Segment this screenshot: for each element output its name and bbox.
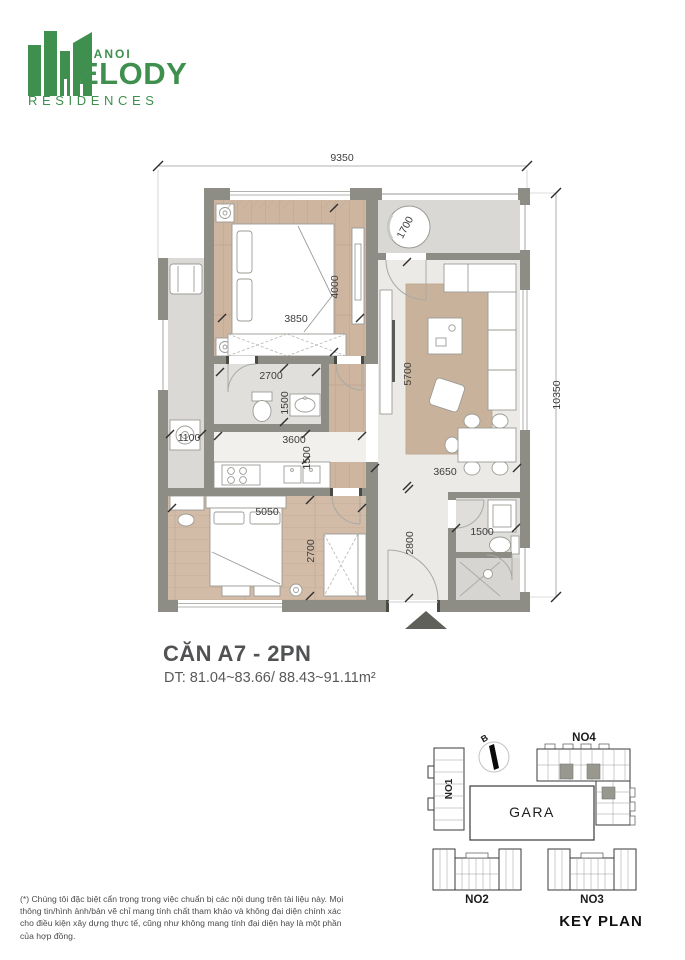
unit-title: CĂN A7 - 2PN xyxy=(163,641,311,667)
dim-kitchen-height: 1500 xyxy=(301,446,313,470)
keyplan-label-no1: NO1 xyxy=(444,778,455,799)
dim-bath2-width: 1500 xyxy=(470,526,494,538)
key-plan: NO1 B GARA xyxy=(428,732,643,930)
north-compass-icon xyxy=(479,742,509,772)
keyplan-building-no3 xyxy=(548,849,636,890)
dim-kitchen-width: 3600 xyxy=(282,434,306,446)
dim-overall-width: 9350 xyxy=(330,152,354,164)
dim-overall-height: 10350 xyxy=(551,380,563,409)
dim-utility-width: 1100 xyxy=(178,432,201,444)
floor-plan-drawing: 9350 10350 1700 3850 4000 2700 1500 5700… xyxy=(0,0,685,960)
keyplan-label-no2: NO2 xyxy=(465,894,489,906)
dim-dining-width: 3650 xyxy=(433,466,457,478)
keyplan-building-no2 xyxy=(433,849,521,890)
dim-hall-height: 2800 xyxy=(404,531,416,555)
keyplan-gara-label: GARA xyxy=(509,804,555,820)
disclaimer-footnote: (*) Chúng tôi đặc biệt cẩn trọng trong v… xyxy=(20,893,356,942)
page: HANOI ELODY RESIDENCES xyxy=(0,0,685,960)
keyplan-label-no4: NO4 xyxy=(572,732,596,744)
dim-bed2-width: 5050 xyxy=(255,506,279,518)
unit-area: DT: 81.04~83.66/ 88.43~91.11m² xyxy=(164,670,376,686)
dim-bath1-height: 1500 xyxy=(279,391,291,415)
entrance-arrow xyxy=(405,611,447,629)
dim-living-height: 5700 xyxy=(402,362,414,386)
dim-bed1-width: 3850 xyxy=(284,313,308,325)
keyplan-label-no3: NO3 xyxy=(580,894,604,906)
keyplan-title: KEY PLAN xyxy=(559,913,643,930)
dim-bed1-height: 4000 xyxy=(329,275,341,299)
dim-bed2-height: 2700 xyxy=(305,539,317,563)
dim-bath1-width: 2700 xyxy=(259,370,283,382)
